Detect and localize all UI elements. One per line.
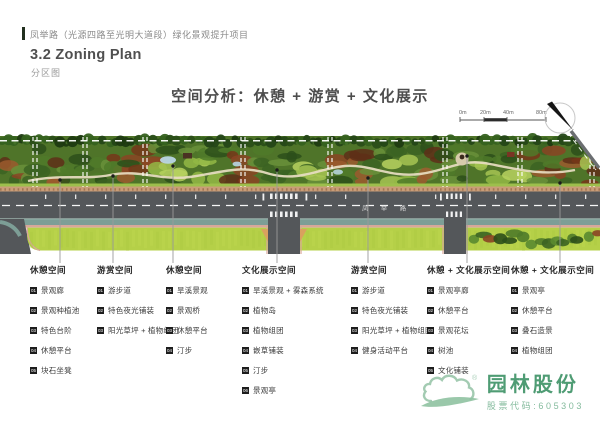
legend-item-label: 阳光草坪 + 植物组团 bbox=[362, 325, 433, 336]
legend-item-label: 休憩平台 bbox=[177, 325, 208, 336]
legend-column-title: 休憩空间 bbox=[30, 264, 80, 276]
legend-item-label: 景观亭廊 bbox=[438, 285, 469, 296]
legend-item-number: 04 bbox=[30, 347, 37, 354]
legend-item: 05汀步 bbox=[242, 365, 324, 376]
legend-column: 游赏空间01游步道02特色夜光铺装03阳光草坪 + 植物组团04健身活动平台 bbox=[351, 264, 433, 365]
legend-item-label: 景观桥 bbox=[177, 305, 200, 316]
slide: 凤举路（光源四路至光明大道段）绿化景观提升项目 3.2 Zoning Plan … bbox=[0, 0, 600, 424]
legend-item-number: 01 bbox=[351, 287, 358, 294]
legend-item-number: 01 bbox=[30, 287, 37, 294]
legend-item-label: 休憩平台 bbox=[522, 305, 553, 316]
legend-item: 03叠石造景 bbox=[511, 325, 594, 336]
legend-item-number: 03 bbox=[242, 327, 249, 334]
legend-column: 休憩空间01旱溪景观02景观桥03休憩平台04汀步 bbox=[166, 264, 208, 365]
section-title: 3.2 Zoning Plan bbox=[30, 47, 142, 63]
legend-item-number: 03 bbox=[30, 327, 37, 334]
legend-item: 01景观亭廊 bbox=[427, 285, 510, 296]
legend-item-label: 游步道 bbox=[108, 285, 131, 296]
legend-item-label: 植物组团 bbox=[522, 345, 553, 356]
legend-item: 04树池 bbox=[427, 345, 510, 356]
legend-item-label: 游步道 bbox=[362, 285, 385, 296]
legend-item: 04健身活动平台 bbox=[351, 345, 433, 356]
legend-item-number: 04 bbox=[427, 347, 434, 354]
legend-item: 03阳光草坪 + 植物组团 bbox=[351, 325, 433, 336]
scale-label-0: 0m bbox=[459, 110, 467, 116]
legend-item: 04汀步 bbox=[166, 345, 208, 356]
legend-item-number: 04 bbox=[511, 347, 518, 354]
legend-item-number: 03 bbox=[511, 327, 518, 334]
legend-item: 02特色夜光铺装 bbox=[351, 305, 433, 316]
legend-item-label: 景观种植池 bbox=[41, 305, 80, 316]
legend-item-number: 01 bbox=[97, 287, 104, 294]
legend-column: 休憩 + 文化展示空间01景观亭02休憩平台03叠石造景04植物组团 bbox=[511, 264, 594, 365]
legend: 休憩空间01景观廊02景观种植池03特色台阶04休憩平台05块石坐凳游赏空间01… bbox=[0, 264, 600, 384]
section-subtitle: 分区图 bbox=[31, 66, 61, 79]
registered-mark: ® bbox=[472, 374, 478, 382]
legend-item: 04休憩平台 bbox=[30, 345, 80, 356]
legend-item: 03休憩平台 bbox=[166, 325, 208, 336]
legend-item-number: 05 bbox=[242, 367, 249, 374]
legend-item-label: 植物组团 bbox=[253, 325, 284, 336]
legend-item-label: 休憩平台 bbox=[41, 345, 72, 356]
legend-item: 05块石坐凳 bbox=[30, 365, 80, 376]
legend-item-label: 旱溪景观 + 雾森系统 bbox=[253, 285, 324, 296]
legend-item-label: 特色夜光铺装 bbox=[362, 305, 408, 316]
legend-item: 02景观桥 bbox=[166, 305, 208, 316]
legend-item-label: 特色夜光铺装 bbox=[108, 305, 154, 316]
legend-item: 01游步道 bbox=[351, 285, 433, 296]
legend-item: 04植物组团 bbox=[511, 345, 594, 356]
legend-item-number: 01 bbox=[242, 287, 249, 294]
company-logo-cloud-icon: ® bbox=[417, 370, 483, 416]
legend-item-number: 04 bbox=[242, 347, 249, 354]
legend-column-title: 文化展示空间 bbox=[242, 264, 324, 276]
legend-item: 02景观种植池 bbox=[30, 305, 80, 316]
legend-item-number: 02 bbox=[166, 307, 173, 314]
legend-item: 06景观亭 bbox=[242, 385, 324, 396]
legend-column-title: 休憩 + 文化展示空间 bbox=[427, 264, 510, 276]
legend-item-label: 旱溪景观 bbox=[177, 285, 208, 296]
legend-item-number: 04 bbox=[166, 347, 173, 354]
legend-item-label: 嵌草铺装 bbox=[253, 345, 284, 356]
legend-item-number: 02 bbox=[351, 307, 358, 314]
legend-item-number: 01 bbox=[511, 287, 518, 294]
scale-label-40: 40m bbox=[503, 110, 514, 116]
legend-item-label: 景观廊 bbox=[41, 285, 64, 296]
legend-column: 文化展示空间01旱溪景观 + 雾森系统02植物岛03植物组团04嵌草铺装05汀步… bbox=[242, 264, 324, 405]
legend-item-label: 汀步 bbox=[253, 365, 268, 376]
legend-item-number: 02 bbox=[242, 307, 249, 314]
legend-item-number: 02 bbox=[30, 307, 37, 314]
legend-item-number: 02 bbox=[97, 307, 104, 314]
road-name-label: 凤 举 路 bbox=[362, 205, 412, 213]
legend-item: 01景观廊 bbox=[30, 285, 80, 296]
legend-item-label: 叠石造景 bbox=[522, 325, 553, 336]
legend-column: 休憩空间01景观廊02景观种植池03特色台阶04休憩平台05块石坐凳 bbox=[30, 264, 80, 385]
legend-item-label: 植物岛 bbox=[253, 305, 276, 316]
company-name: 园林股份 bbox=[487, 374, 584, 396]
legend-item: 02植物岛 bbox=[242, 305, 324, 316]
legend-item-number: 03 bbox=[427, 327, 434, 334]
legend-item: 03特色台阶 bbox=[30, 325, 80, 336]
legend-item-number: 03 bbox=[97, 327, 104, 334]
legend-item: 04嵌草铺装 bbox=[242, 345, 324, 356]
legend-item-label: 健身活动平台 bbox=[362, 345, 408, 356]
title-accent-bar bbox=[22, 27, 25, 40]
legend-item: 03植物组团 bbox=[242, 325, 324, 336]
legend-item-label: 树池 bbox=[438, 345, 453, 356]
legend-item: 01景观亭 bbox=[511, 285, 594, 296]
legend-column: 休憩 + 文化展示空间01景观亭廊02休憩平台03景观花坛04树池05文化铺装 bbox=[427, 264, 510, 385]
legend-item-label: 特色台阶 bbox=[41, 325, 72, 336]
legend-item-number: 06 bbox=[242, 387, 249, 394]
legend-item: 01旱溪景观 bbox=[166, 285, 208, 296]
legend-item-label: 景观亭 bbox=[253, 385, 276, 396]
legend-item-number: 03 bbox=[351, 327, 358, 334]
project-title: 凤举路（光源四路至光明大道段）绿化景观提升项目 bbox=[30, 28, 249, 41]
scale-label-20: 20m bbox=[480, 110, 491, 116]
legend-item-label: 景观亭 bbox=[522, 285, 545, 296]
company-logo: ® 园林股份 股票代码:605303 bbox=[417, 370, 584, 416]
legend-item-number: 01 bbox=[166, 287, 173, 294]
legend-item-number: 02 bbox=[511, 307, 518, 314]
legend-item: 03景观花坛 bbox=[427, 325, 510, 336]
legend-item-number: 01 bbox=[427, 287, 434, 294]
legend-item-number: 05 bbox=[30, 367, 37, 374]
legend-item: 02休憩平台 bbox=[511, 305, 594, 316]
legend-item: 01旱溪景观 + 雾森系统 bbox=[242, 285, 324, 296]
legend-column-title: 游赏空间 bbox=[351, 264, 433, 276]
site-plan-rendering: 凤 举 路 bbox=[0, 130, 600, 270]
legend-item-label: 休憩平台 bbox=[438, 305, 469, 316]
legend-item-label: 块石坐凳 bbox=[41, 365, 72, 376]
legend-item-label: 景观花坛 bbox=[438, 325, 469, 336]
legend-item-label: 汀步 bbox=[177, 345, 192, 356]
stock-code: 股票代码:605303 bbox=[487, 399, 584, 412]
legend-item-number: 03 bbox=[166, 327, 173, 334]
legend-item: 02休憩平台 bbox=[427, 305, 510, 316]
legend-item-number: 04 bbox=[351, 347, 358, 354]
legend-item-number: 02 bbox=[427, 307, 434, 314]
legend-column-title: 休憩 + 文化展示空间 bbox=[511, 264, 594, 276]
legend-column-title: 休憩空间 bbox=[166, 264, 208, 276]
